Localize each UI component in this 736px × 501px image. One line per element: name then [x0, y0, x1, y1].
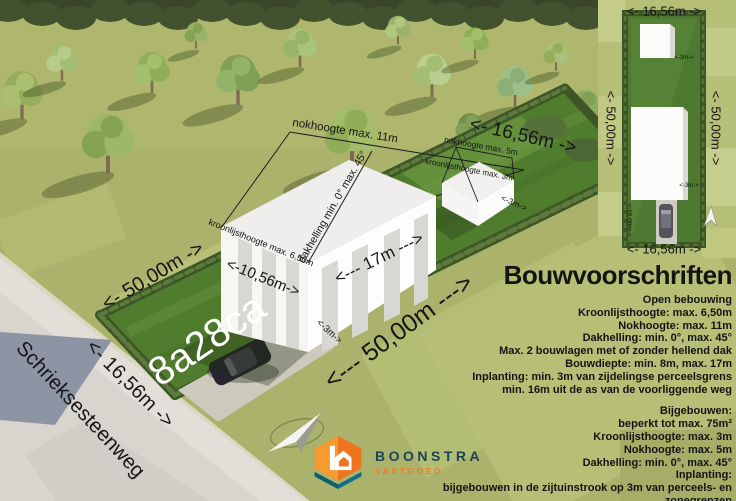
regulation-line: Nokhoogte: max. 11m [422, 320, 732, 333]
logo-subtitle: VASTGOED [375, 466, 483, 476]
inset-label-width-top: <- 16,56m -> [627, 5, 701, 18]
logo-name: BOONSTRA [375, 448, 483, 464]
logo-hexagon-icon [311, 435, 365, 489]
inset-label-length-left: <- 50,00m -> [605, 91, 618, 165]
inset-label-setback-side: <-3m-> [679, 183, 698, 189]
regulations-title: Bouwvoorschriften [422, 260, 732, 291]
regulation-line: Inplanting: min. 3m van zijdelingse perc… [422, 371, 732, 384]
inset-label-width-bottom: <- 16,56m -> [627, 243, 701, 256]
regulation-line: Bouwdiepte: min. 8m, max. 17m [422, 358, 732, 371]
inset-label-setback-top: <-3m-> [674, 55, 693, 61]
inset-outbuilding [640, 24, 675, 58]
regulation-line: min. 16m uit de as van de voorliggende w… [422, 384, 732, 397]
regulation-line: Open bebouwing [422, 294, 732, 307]
boonstra-vastgoed-logo: BOONSTRA VASTGOED [311, 435, 483, 489]
regulation-line: beperkt tot max. 75m² [422, 418, 732, 431]
inset-car [659, 204, 673, 238]
regulation-line: Kroonlijsthoogte: max. 6,50m [422, 307, 732, 320]
inset-label-length-right: <- 50,00m -> [710, 91, 723, 165]
site-plan-inset: <- 16,56m -> <- 50,00m -> <- 50,00m -> <… [598, 0, 736, 258]
inset-label-front-distance: <-16,00m-> [625, 203, 632, 237]
regulation-line: Max. 2 bouwlagen met of zonder hellend d… [422, 345, 732, 358]
regulation-line: Bijgebouwen: [422, 405, 732, 418]
regulation-line: Dakhelling: min. 0°, max. 45° [422, 332, 732, 345]
site-visualisation-poster: nokhoogte max. 11m dakhelling min. 0° ma… [0, 0, 736, 501]
